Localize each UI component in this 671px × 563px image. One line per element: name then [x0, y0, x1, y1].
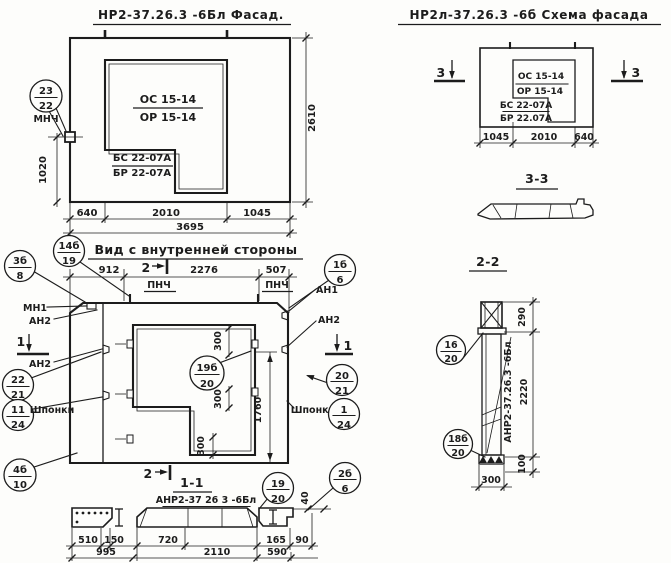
section-2-2-title: 2-2 [476, 254, 500, 269]
dim-100: 100 [517, 454, 528, 474]
schema-title: НР2л-37.26.3 -6б Схема фасада [409, 8, 648, 22]
schema-bottom-dims: 1045 2010 640 [474, 122, 599, 148]
dim-510: 510 [78, 535, 98, 546]
schema-drawing: НР2л-37.26.3 -6б Схема фасада ОС 15-14 О… [398, 8, 661, 148]
dim-2010: 2010 [531, 132, 558, 143]
pnch-label-right: ПНЧ [258, 280, 293, 303]
dim-1045: 1045 [243, 208, 271, 219]
inner-view-title: Вид с внутренней стороны [94, 242, 297, 257]
marker-sheet: 10 [13, 480, 27, 491]
right-end-piece [259, 508, 293, 526]
window-label-bs: БС 22-07А [113, 153, 171, 164]
inner-top-dims: 912 2276 507 [63, 265, 297, 313]
dim-1020: 1020 [38, 156, 49, 184]
dim-300-c: 300 [196, 436, 207, 456]
marker-sheet: 6 [342, 484, 349, 495]
section-mark-label: 3 [631, 65, 640, 80]
section-mark-label: 1 [16, 334, 25, 349]
part-label-vertical: АНР2-37.26.3 -6Бл [503, 341, 514, 442]
window-label-br: БР 22.07А [500, 114, 552, 124]
window-label-bs: БС 22-07А [500, 101, 552, 111]
marker-sheet: 20 [451, 448, 465, 459]
section-3-3: 3-3 [478, 171, 593, 219]
section-mark-2-top: 2 [141, 259, 167, 275]
frame-tab [127, 340, 133, 348]
dim-3695: 3695 [176, 222, 204, 233]
marker-sheet: 8 [17, 271, 24, 282]
facade-title: НР2-37.26.3 -6Бл Фасад. [98, 8, 284, 22]
dim-2110: 2110 [204, 547, 231, 558]
facade-drawing: НР2-37.26.3 -6Бл Фасад. ОС 15-14 ОР 15-1… [30, 8, 318, 238]
frame-tab [252, 388, 258, 396]
facade-left-dim: 1020 [38, 132, 83, 207]
dim-640: 640 [574, 132, 594, 143]
rebar-bar-left [115, 509, 123, 526]
section-2-2: 2-2 АНР2-37.26.3 -6Бл 290 2220 100 300 1… [437, 254, 541, 491]
dim-40: 40 [300, 491, 311, 505]
dim-720: 720 [158, 535, 178, 546]
ref-marker-4b-10: 4б 10 [4, 453, 77, 491]
label-mn1: МН1 [23, 303, 47, 314]
ref-marker-22-21: 22 21 [3, 352, 102, 401]
section-1-1-dims: 510 150 720 165 90 995 2110 590 [66, 513, 318, 562]
marker-num: 11 [11, 405, 25, 416]
marker-num: 4б [13, 464, 27, 476]
marker-sheet: 24 [337, 420, 351, 431]
frame-tab [252, 340, 258, 348]
inner-view-drawing: Вид с внутренней стороны 912 2276 507 2 … [3, 236, 360, 492]
drawing-sheet: НР2-37.26.3 -6Бл Фасад. ОС 15-14 ОР 15-1… [0, 0, 671, 563]
section-mark-3-right: 3 [611, 60, 643, 81]
pnch-text: ПНЧ [147, 280, 171, 291]
frame-tab [127, 390, 133, 398]
marker-num: 1б [333, 259, 347, 271]
facade-bottom-dims: 640 2010 1045 3695 [63, 202, 297, 238]
drawing-canvas: НР2-37.26.3 -6Бл Фасад. ОС 15-14 ОР 15-1… [0, 0, 671, 563]
section-1-1: 1-1 АНР2-37 26 3 -6Бл 40 [66, 463, 361, 562]
ref-marker-18b-20: 18б 20 [444, 430, 486, 460]
dim-165: 165 [266, 535, 286, 546]
marker-sheet: 24 [11, 420, 25, 431]
marker-num: 22 [11, 375, 25, 386]
marker-num: 19б [197, 362, 218, 374]
marker-num: 18б [448, 434, 468, 445]
marker-num: 1 [341, 405, 348, 416]
ref-marker-19-20: 19 20 [259, 473, 294, 510]
section-mark-3-left: 3 [434, 60, 465, 81]
section-mark-2-bottom: 2 [143, 465, 170, 481]
dim-590: 590 [267, 547, 287, 558]
frame-tab [127, 435, 133, 443]
ref-marker-2b-6: 2б 6 [308, 463, 361, 511]
label-an2-left-lower: АН2 [29, 359, 51, 370]
dim-1760: 1760 [253, 396, 264, 423]
ref-marker-1b-6: 1б 6 [289, 255, 356, 309]
marker-sheet: 19 [62, 256, 76, 267]
opening-dims: 300 300 300 1760 [196, 325, 277, 464]
key-left-upper [103, 345, 109, 354]
dim-90: 90 [295, 535, 309, 546]
dim-2010: 2010 [152, 208, 180, 219]
marker-sheet: 20 [271, 494, 285, 505]
section-1-1-title: 1-1 [180, 475, 204, 490]
dim-150: 150 [104, 535, 124, 546]
dim-2610: 2610 [307, 104, 318, 132]
section-3-3-title: 3-3 [525, 171, 549, 186]
dim-2220: 2220 [519, 378, 530, 405]
section-mark-label: 2 [141, 260, 150, 275]
section-mark-label: 1 [343, 338, 352, 353]
label-an1: АН1 [316, 285, 338, 296]
window-label-or: ОР 15-14 [140, 111, 197, 124]
key-left-lower [103, 391, 109, 400]
dim-300-b: 300 [213, 389, 224, 409]
marker-num: 23 [39, 86, 53, 97]
window-label-os: ОС 15-14 [140, 93, 197, 106]
marker-num: 2б [338, 468, 352, 480]
label-an2-right: АН2 [318, 315, 340, 326]
facade-right-dim: 2610 [292, 32, 318, 208]
main-profile [137, 508, 257, 527]
section-mark-1-right: 1 [325, 334, 353, 354]
part-label: АНР2-37 26 3 -6Бл [156, 495, 257, 506]
ref-marker-20-21: 20 21 [305, 365, 357, 398]
dim-2276: 2276 [190, 265, 218, 276]
marker-sheet: 20 [444, 354, 458, 365]
marker-num: 19 [271, 479, 285, 490]
dim-995: 995 [96, 547, 116, 558]
left-end-piece [72, 508, 112, 527]
marker-sheet: 21 [335, 386, 349, 397]
label-shponki-left: Шпонки [30, 405, 75, 416]
marker-num: 16 [444, 340, 458, 351]
marker-note: МНЧ [33, 114, 58, 125]
marker-num: 3б [13, 255, 27, 267]
section-mark-label: 2 [143, 466, 152, 481]
dim-912: 912 [99, 265, 120, 276]
dim-1045: 1045 [483, 132, 509, 143]
ref-marker-19b-20: 19б 20 [190, 351, 251, 390]
section-mark-label: 3 [436, 65, 445, 80]
dim-290: 290 [517, 307, 528, 327]
ref-marker-23-22: 23 22 МНЧ [30, 80, 66, 136]
marker-num: 20 [335, 371, 349, 382]
ref-marker-16-20: 16 20 [437, 333, 484, 365]
dim-640: 640 [77, 208, 98, 219]
dim-300-a: 300 [213, 331, 224, 351]
opening-frame-inner [137, 329, 251, 451]
window-label-or: ОР 15-14 [517, 87, 563, 97]
marker-sheet: 22 [39, 101, 53, 112]
pnch-label-left: ПНЧ [130, 280, 176, 303]
pnch-text: ПНЧ [265, 280, 289, 291]
dim-507: 507 [266, 265, 287, 276]
marker-num: 14б [59, 240, 80, 252]
ref-marker-1-24: 1 24 [329, 399, 360, 432]
dim-300: 300 [481, 475, 501, 486]
panel-body-section [482, 334, 501, 455]
section-mark-1-left: 1 [16, 334, 49, 354]
window-label-br: БР 22-07А [113, 168, 171, 179]
marker-sheet: 20 [200, 379, 214, 390]
window-label-os: ОС 15-14 [518, 72, 564, 82]
label-an2-left-upper: АН2 [29, 316, 51, 327]
